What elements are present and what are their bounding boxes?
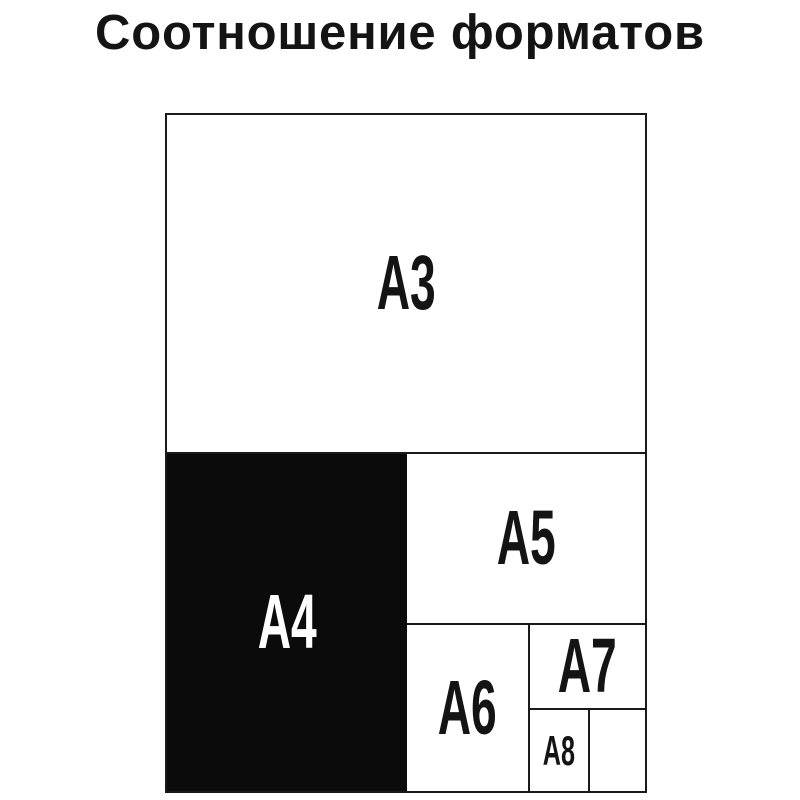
- format-cell-a4-highlighted: A4: [167, 454, 407, 791]
- format-cell-a8: A8: [530, 710, 590, 791]
- format-label-a7: A7: [558, 628, 617, 705]
- format-cell-a8-empty: [590, 710, 645, 791]
- format-label-a5: A5: [496, 500, 555, 577]
- paper-format-diagram: A3 A4 A5 A6 A7 A8: [165, 113, 647, 793]
- format-cell-a5: A5: [407, 454, 645, 625]
- format-label-a3: A3: [376, 245, 435, 322]
- format-label-a8: A8: [543, 730, 575, 772]
- page: Соотношение форматов A3 A4 A5 A6 A7 A8: [0, 0, 800, 800]
- page-title: Соотношение форматов: [0, 4, 800, 63]
- format-cell-a3: A3: [167, 115, 645, 454]
- format-cell-a7: A7: [530, 625, 645, 710]
- format-label-a4: A4: [257, 584, 316, 661]
- format-label-a6: A6: [438, 670, 497, 747]
- format-cell-a6: A6: [407, 625, 530, 791]
